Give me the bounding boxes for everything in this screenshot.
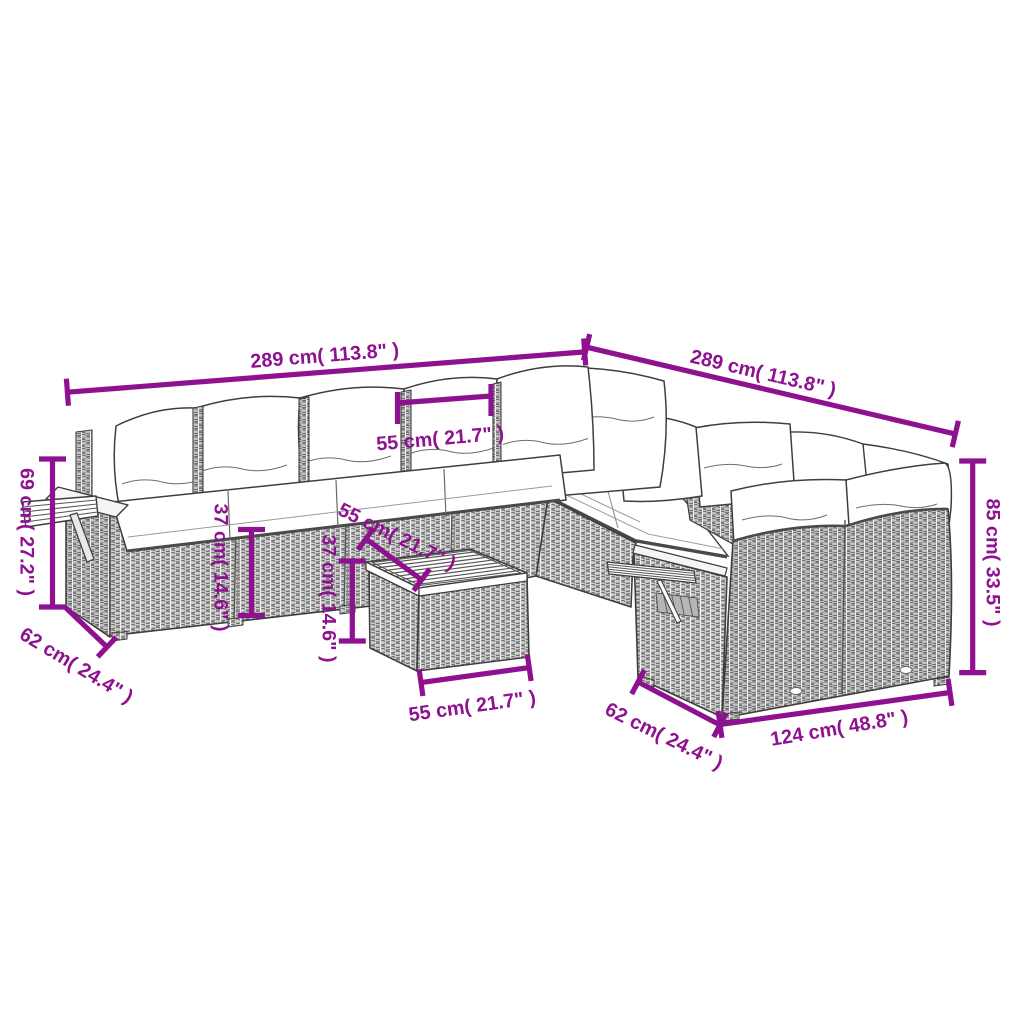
svg-text:37 cm( 14.6" ): 37 cm( 14.6" ) (318, 534, 340, 662)
svg-text:85 cm( 33.5" ): 85 cm( 33.5" ) (982, 498, 1004, 626)
svg-text:69 cm( 27.2" ): 69 cm( 27.2" ) (16, 468, 38, 596)
svg-text:37 cm( 14.6" ): 37 cm( 14.6" ) (210, 503, 232, 631)
